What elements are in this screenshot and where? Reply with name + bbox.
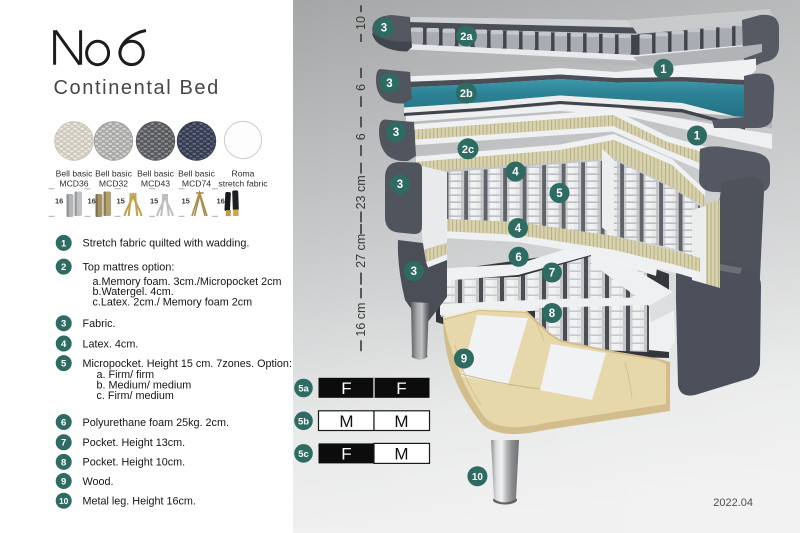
svg-text:MCD36: MCD36 xyxy=(59,179,88,189)
svg-text:6: 6 xyxy=(354,84,368,91)
svg-text:7: 7 xyxy=(549,268,555,280)
svg-text:23 cm: 23 cm xyxy=(354,175,368,209)
svg-text:6: 6 xyxy=(354,133,368,140)
svg-text:16 cm: 16 cm xyxy=(354,303,368,337)
svg-text:5b: 5b xyxy=(298,416,309,427)
svg-text:2c: 2c xyxy=(462,144,474,156)
svg-text:27 cm: 27 cm xyxy=(354,234,368,268)
svg-text:8: 8 xyxy=(61,457,66,468)
svg-text:7: 7 xyxy=(61,438,66,449)
svg-text:MCD43: MCD43 xyxy=(141,179,170,189)
svg-text:2b: 2b xyxy=(460,88,473,100)
svg-text:3: 3 xyxy=(61,319,66,330)
svg-text:Bell basic: Bell basic xyxy=(137,169,174,179)
svg-text:F: F xyxy=(396,379,406,398)
svg-text:15: 15 xyxy=(117,197,125,206)
svg-text:5c: 5c xyxy=(298,449,309,460)
svg-text:Pocket. Height 10cm.: Pocket. Height 10cm. xyxy=(83,457,186,469)
svg-text:10: 10 xyxy=(59,496,69,506)
svg-text:10: 10 xyxy=(472,472,484,483)
svg-text:3: 3 xyxy=(393,127,399,139)
svg-text:Bell basic: Bell basic xyxy=(178,169,215,179)
svg-text:F: F xyxy=(341,445,351,464)
svg-text:5a: 5a xyxy=(298,384,309,395)
svg-text:Wood.: Wood. xyxy=(83,476,114,488)
svg-text:1: 1 xyxy=(694,131,701,143)
svg-text:M: M xyxy=(394,445,408,464)
svg-text:15: 15 xyxy=(182,197,190,206)
svg-text:16: 16 xyxy=(88,197,96,206)
svg-text:Roma: Roma xyxy=(232,169,255,179)
svg-text:5: 5 xyxy=(556,188,563,200)
svg-text:2022.04: 2022.04 xyxy=(713,497,753,509)
svg-text:4: 4 xyxy=(61,339,67,350)
svg-text:stretch fabric: stretch fabric xyxy=(218,179,268,189)
svg-text:8: 8 xyxy=(549,308,556,320)
svg-text:16: 16 xyxy=(55,197,63,206)
svg-text:M: M xyxy=(339,412,353,431)
svg-text:Pocket. Height 13cm.: Pocket. Height 13cm. xyxy=(83,437,186,449)
svg-text:c. Firm/ medium: c. Firm/ medium xyxy=(97,390,174,402)
svg-text:5: 5 xyxy=(61,359,67,370)
svg-text:9: 9 xyxy=(461,354,467,366)
svg-text:F: F xyxy=(341,379,351,398)
svg-text:3: 3 xyxy=(386,78,392,90)
svg-text:Bell basic: Bell basic xyxy=(95,169,132,179)
svg-text:3: 3 xyxy=(381,22,387,34)
svg-text:6: 6 xyxy=(61,417,66,428)
svg-text:Metal leg. Height 16cm.: Metal leg. Height 16cm. xyxy=(83,496,196,508)
svg-text:MCD74: MCD74 xyxy=(182,179,211,189)
svg-text:1: 1 xyxy=(61,238,67,249)
svg-text:3: 3 xyxy=(411,266,417,278)
svg-text:Bell basic: Bell basic xyxy=(56,169,93,179)
svg-text:2: 2 xyxy=(61,262,66,273)
svg-text:10: 10 xyxy=(354,16,368,30)
svg-text:4: 4 xyxy=(515,223,522,235)
svg-text:Stretch fabric quilted with wa: Stretch fabric quilted with wadding. xyxy=(83,238,250,250)
svg-text:9: 9 xyxy=(61,476,66,487)
svg-text:M: M xyxy=(394,412,408,431)
svg-text:16: 16 xyxy=(217,197,225,206)
svg-text:3: 3 xyxy=(397,179,403,191)
svg-text:Latex. 4cm.: Latex. 4cm. xyxy=(83,338,139,350)
svg-text:Continental Bed: Continental Bed xyxy=(54,77,220,99)
svg-text:Top mattres option:: Top mattres option: xyxy=(83,261,175,273)
svg-text:2a: 2a xyxy=(460,31,473,43)
svg-text:Polyurethane foam 25kg. 2cm.: Polyurethane foam 25kg. 2cm. xyxy=(83,417,229,429)
svg-text:Fabric.: Fabric. xyxy=(83,318,116,330)
svg-text:4: 4 xyxy=(512,167,519,179)
svg-text:MCD32: MCD32 xyxy=(99,179,128,189)
svg-text:c.Latex. 2cm./ Memory foam 2cm: c.Latex. 2cm./ Memory foam 2cm xyxy=(93,297,253,309)
svg-text:1: 1 xyxy=(660,64,667,76)
svg-text:15: 15 xyxy=(150,197,158,206)
svg-text:6: 6 xyxy=(515,252,521,264)
